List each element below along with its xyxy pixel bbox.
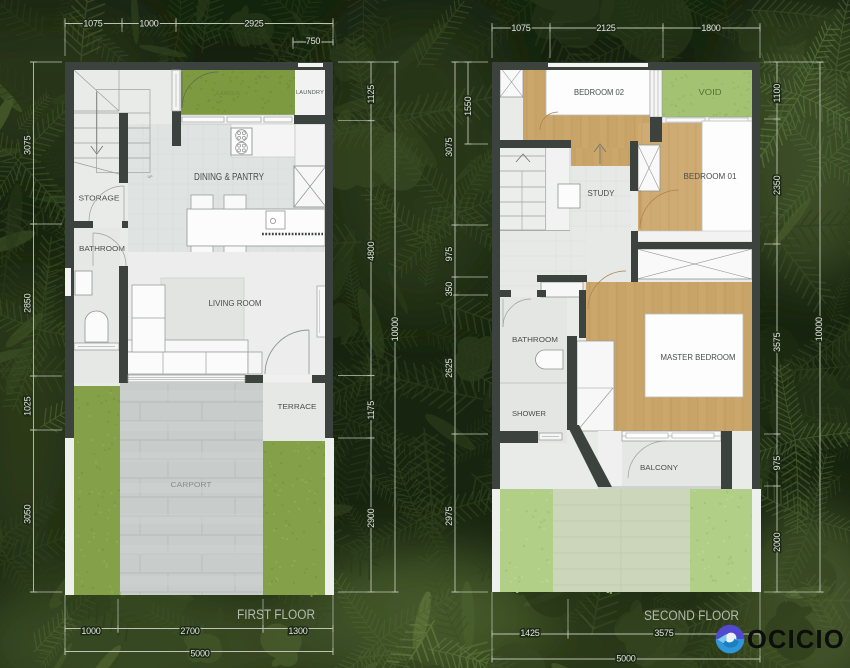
svg-text:1075: 1075 [83,19,102,29]
svg-text:975: 975 [772,456,782,471]
svg-text:BATHROOM: BATHROOM [79,244,125,253]
svg-text:10000: 10000 [814,317,824,341]
svg-text:2975: 2975 [444,506,454,525]
svg-text:3575: 3575 [654,628,673,638]
svg-text:2850: 2850 [23,293,33,312]
svg-text:2350: 2350 [772,175,782,194]
svg-text:DINING & PANTRY: DINING & PANTRY [194,172,264,183]
svg-text:5000: 5000 [616,654,635,664]
svg-text:1025: 1025 [23,396,33,415]
svg-text:BALCONY: BALCONY [640,463,678,472]
svg-text:TERRACE: TERRACE [278,402,317,411]
svg-text:3075: 3075 [23,135,33,154]
svg-text:350: 350 [444,282,454,297]
svg-text:UP: UP [148,175,154,179]
svg-text:1000: 1000 [139,19,158,29]
svg-text:1000: 1000 [81,626,100,636]
svg-text:VOID: VOID [699,88,722,97]
svg-text:1175: 1175 [366,401,376,420]
svg-text:2125: 2125 [596,23,615,33]
svg-text:SECOND FLOOR: SECOND FLOOR [644,608,739,623]
svg-text:1425: 1425 [520,628,539,638]
svg-text:2000: 2000 [772,532,782,551]
svg-text:750: 750 [306,36,321,46]
svg-text:3075: 3075 [444,137,454,156]
svg-text:SHOWER: SHOWER [512,409,547,418]
svg-text:1800: 1800 [701,23,720,33]
svg-text:1300: 1300 [288,626,307,636]
svg-text:LIVING ROOM: LIVING ROOM [209,298,262,308]
svg-text:4800: 4800 [366,241,376,260]
svg-text:10000: 10000 [390,317,400,341]
svg-text:STORAGE: STORAGE [79,194,120,203]
svg-text:MASTER BEDROOM: MASTER BEDROOM [661,352,736,362]
svg-text:1550: 1550 [463,96,473,115]
svg-text:OCICIO: OCICIO [747,626,845,654]
svg-text:BEDROOM 02: BEDROOM 02 [574,87,624,97]
svg-text:3050: 3050 [23,504,33,523]
svg-text:2900: 2900 [366,508,376,527]
svg-text:FIRST FLOOR: FIRST FLOOR [237,607,315,622]
svg-text:BATHROOM: BATHROOM [512,335,558,344]
svg-text:GARDEN: GARDEN [216,91,240,97]
svg-text:5000: 5000 [190,649,209,659]
svg-text:1075: 1075 [511,23,530,33]
svg-text:1100: 1100 [772,84,782,103]
svg-text:2625: 2625 [444,358,454,377]
svg-text:LAUNDRY: LAUNDRY [296,90,324,96]
svg-text:CARPORT: CARPORT [171,480,213,489]
svg-text:1125: 1125 [366,85,376,104]
svg-text:STUDY: STUDY [588,189,616,198]
svg-text:3575: 3575 [772,332,782,351]
svg-text:975: 975 [444,247,454,262]
svg-text:BEDROOM 01: BEDROOM 01 [684,171,737,181]
svg-text:2700: 2700 [180,626,199,636]
svg-text:2925: 2925 [244,19,263,29]
